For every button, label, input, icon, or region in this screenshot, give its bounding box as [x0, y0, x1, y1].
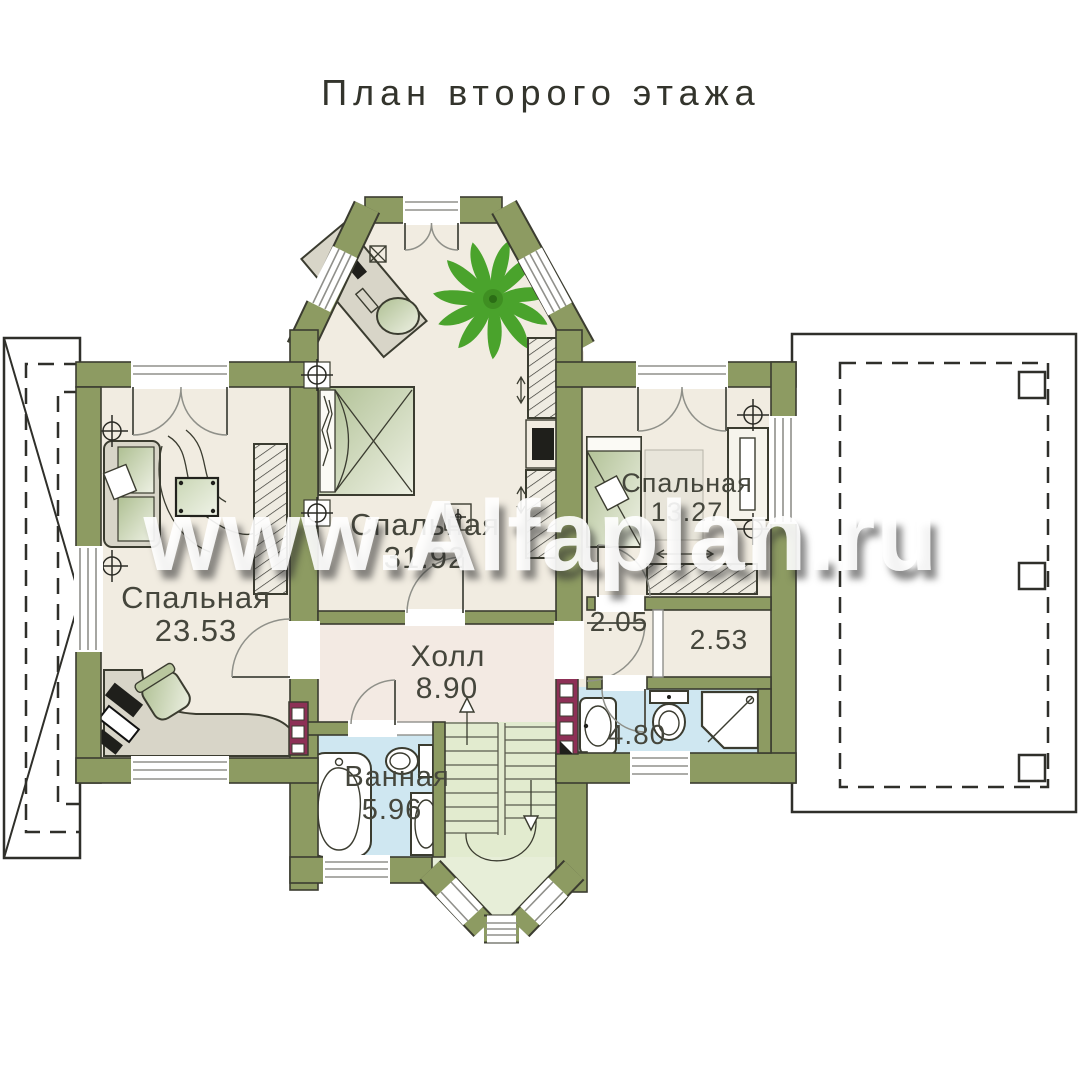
room-label: Спальная [121, 580, 271, 615]
room-label: Ванная [344, 761, 449, 793]
glass-partition [395, 722, 433, 735]
room-area: 13.27 [651, 497, 724, 527]
wardrobe [528, 338, 558, 418]
wardrobe [526, 470, 558, 558]
room-area: 31.92 [384, 540, 467, 575]
garage-post [1019, 372, 1045, 398]
room-area: 23.53 [155, 613, 238, 648]
garage-roof-outline [792, 334, 1076, 812]
floor-plan: Спальная 23.53 Спальная 31.92 Спальная 1… [0, 0, 1082, 1080]
office-chair [377, 298, 419, 334]
wardrobe [647, 564, 757, 594]
garage-post [1019, 563, 1045, 589]
cased-opening [653, 610, 663, 677]
bed-headboard [587, 437, 641, 451]
wardrobe [254, 444, 287, 594]
room-label: Спальная [350, 507, 500, 542]
room-area: 8.90 [416, 672, 478, 705]
stair-floor [445, 722, 557, 857]
room-area: 5.96 [362, 794, 422, 826]
room-area: 2.53 [690, 624, 749, 655]
room-label: Спальная [621, 468, 753, 498]
window [630, 751, 690, 785]
side-roof-outline [4, 338, 80, 858]
room-label: Холл [411, 640, 486, 673]
room-area: 4.80 [608, 719, 667, 750]
window [323, 855, 390, 885]
room-area: 2.05 [590, 606, 649, 637]
garage-post [1019, 755, 1045, 781]
